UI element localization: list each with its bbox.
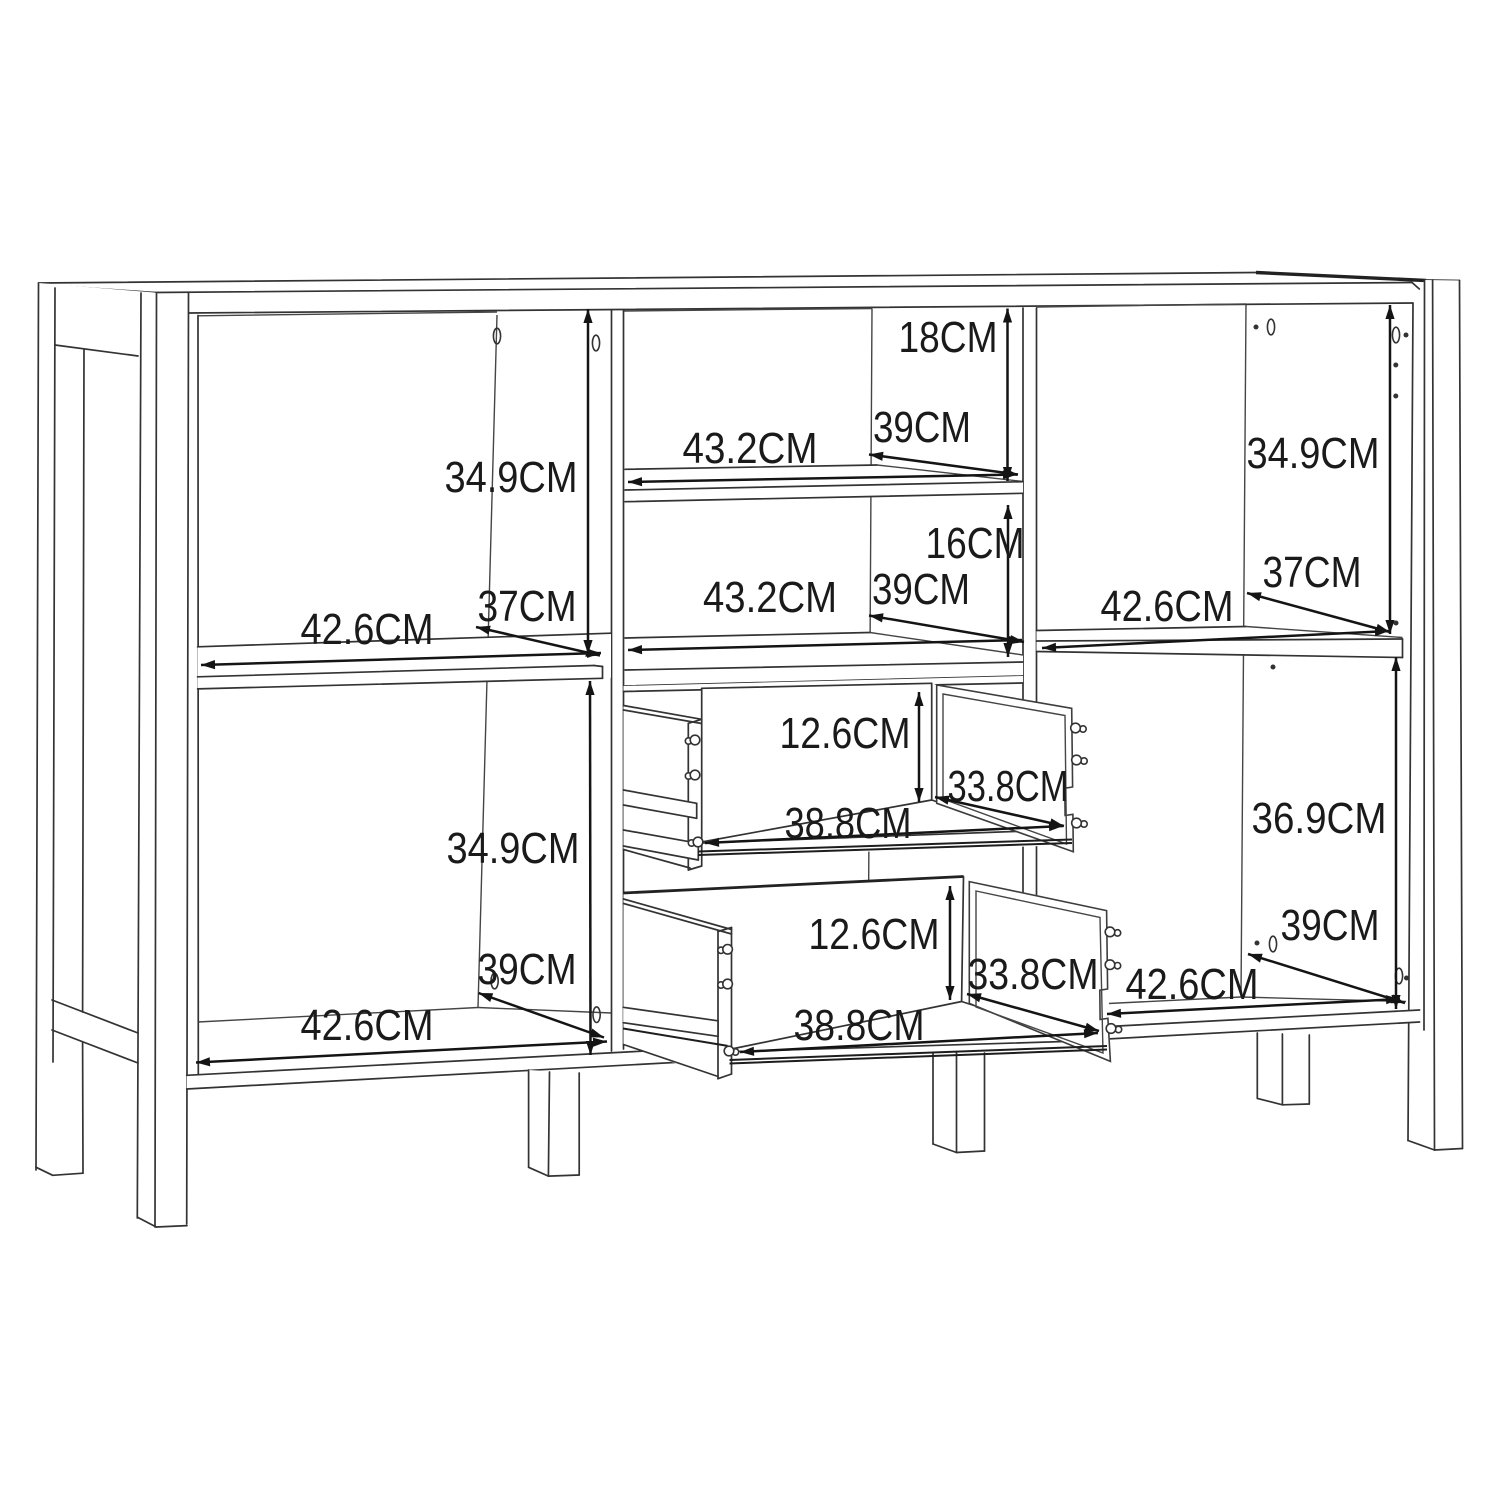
svg-text:34.9CM: 34.9CM: [1247, 429, 1380, 478]
svg-text:38.8CM: 38.8CM: [794, 1001, 925, 1050]
svg-text:42.6CM: 42.6CM: [301, 1001, 434, 1050]
svg-text:42.6CM: 42.6CM: [1126, 960, 1259, 1009]
svg-text:42.6CM: 42.6CM: [301, 605, 434, 654]
svg-text:38.8CM: 38.8CM: [785, 799, 912, 848]
svg-text:43.2CM: 43.2CM: [703, 573, 837, 622]
svg-text:36.9CM: 36.9CM: [1252, 794, 1387, 843]
svg-text:34.9CM: 34.9CM: [445, 453, 578, 502]
svg-text:39CM: 39CM: [872, 565, 970, 614]
svg-text:43.2CM: 43.2CM: [683, 424, 818, 473]
svg-text:33.8CM: 33.8CM: [968, 950, 1099, 999]
svg-text:37CM: 37CM: [478, 582, 577, 631]
svg-text:42.6CM: 42.6CM: [1101, 582, 1234, 631]
svg-text:34.9CM: 34.9CM: [447, 824, 580, 873]
svg-text:33.8CM: 33.8CM: [948, 762, 1069, 811]
svg-text:39CM: 39CM: [1281, 901, 1380, 950]
svg-text:37CM: 37CM: [1263, 548, 1362, 597]
svg-text:12.6CM: 12.6CM: [809, 910, 940, 959]
svg-text:12.6CM: 12.6CM: [780, 709, 911, 758]
svg-text:18CM: 18CM: [899, 313, 998, 362]
svg-text:39CM: 39CM: [873, 403, 971, 452]
svg-text:16CM: 16CM: [926, 519, 1025, 568]
svg-text:39CM: 39CM: [478, 945, 577, 994]
